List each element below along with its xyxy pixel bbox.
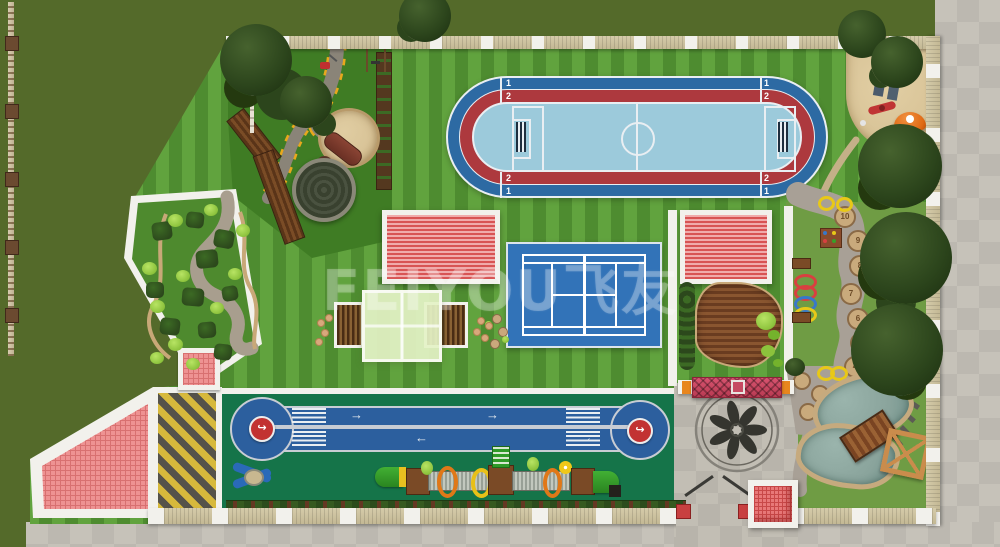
tree <box>860 212 952 304</box>
garden-bench <box>792 312 811 323</box>
toy-mower <box>320 62 330 69</box>
play-ball <box>860 120 866 126</box>
climbing-box-dot <box>823 239 827 243</box>
gate-canopy-post <box>682 381 691 394</box>
garden-bush <box>168 214 183 227</box>
garden-shrub <box>146 282 164 298</box>
climbing-box-dot <box>832 231 836 235</box>
pinwheel-icon <box>696 389 778 471</box>
garden-bush <box>186 358 200 370</box>
wall-top <box>226 36 936 49</box>
garden-shrub <box>185 211 205 229</box>
guard-booth-roof <box>754 486 792 522</box>
swing-seat <box>371 61 380 64</box>
gate-canopy-post <box>781 381 790 394</box>
pebble <box>473 328 481 336</box>
play-ring-yellow <box>836 197 853 212</box>
crawl-ring-orange <box>437 466 458 498</box>
spinner-toy <box>230 458 274 494</box>
watermark: FEIYOU飞友 <box>322 246 679 327</box>
hopscotch-stone-7: 7 <box>840 283 862 305</box>
garden-shrub <box>195 249 219 269</box>
garden-shrub <box>197 321 216 339</box>
spinner-seat <box>244 469 264 486</box>
tree <box>851 304 943 396</box>
spiral-mound <box>292 158 356 222</box>
garden-bush <box>228 268 242 280</box>
play-platform <box>571 468 595 495</box>
garden-shrub <box>181 287 204 307</box>
swing-post <box>366 48 368 72</box>
play-dome-cap <box>906 115 914 123</box>
tree <box>280 76 332 128</box>
garden-bush <box>150 300 165 313</box>
pebble <box>315 338 323 346</box>
climbing-box-dot <box>832 239 836 243</box>
climb-ladder <box>492 446 510 468</box>
structure-bush <box>421 461 433 475</box>
play-ring-yellow <box>818 196 835 211</box>
deck-bush <box>756 312 776 330</box>
garden-bush <box>168 338 183 351</box>
garden-bush <box>236 224 250 237</box>
play-platform <box>488 465 514 495</box>
garden-bush <box>210 302 224 314</box>
garden-bush <box>150 352 164 364</box>
gate-canopy-cap <box>731 380 745 394</box>
flower-bush <box>502 336 509 343</box>
pebble <box>481 334 489 342</box>
tree <box>220 24 292 96</box>
garden-shrub <box>213 228 236 249</box>
gate-barrier-post <box>676 504 691 519</box>
crawl-ring-orange <box>543 468 562 498</box>
garden-shrub <box>213 343 233 361</box>
play-structure <box>375 455 621 497</box>
rope-climber-frame <box>880 428 932 480</box>
garden-bush <box>176 270 190 282</box>
tree <box>858 124 942 208</box>
climbing-box-dot <box>823 231 827 235</box>
pebble <box>321 329 329 337</box>
seesaw-pivot <box>879 105 885 111</box>
log-slice <box>490 339 500 349</box>
site-plan-canvas: → → ← ← ↪ ↪ 1 2 2 1 1 2 2 1 <box>0 0 1000 547</box>
garden-shrub <box>159 317 181 336</box>
small-bush <box>785 358 805 376</box>
structure-bush <box>527 457 539 471</box>
slide-base <box>609 485 621 497</box>
garden-bench <box>792 258 811 269</box>
garden-bush <box>204 204 218 216</box>
slide-cap <box>399 467 406 487</box>
swing-post <box>384 48 386 72</box>
tree <box>871 36 923 88</box>
wall-bottom <box>148 508 936 524</box>
garden-bush <box>142 262 157 275</box>
